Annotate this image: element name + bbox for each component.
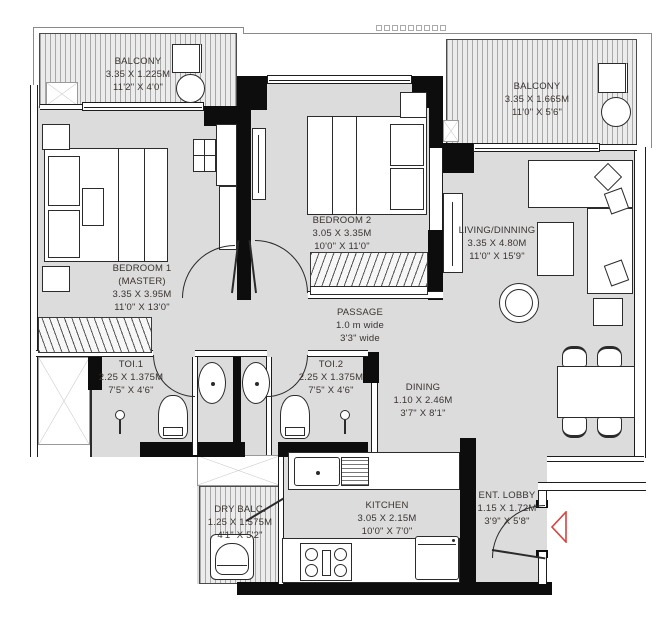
wall-thin (195, 350, 237, 357)
side-table (193, 139, 216, 172)
room-dim-m: 1.15 X 1.72M (452, 502, 562, 515)
bed-fold-line (332, 117, 333, 214)
room-subname: (MASTER) (77, 275, 207, 288)
drum-line (217, 565, 247, 566)
room-name: BEDROOM 2 (277, 214, 407, 227)
wc-toilet2 (280, 395, 310, 439)
duct-ledge (443, 120, 459, 142)
room-dim-ft: 10'0" X 11'0" (277, 240, 407, 253)
fridge-knob (452, 539, 455, 542)
side-table (593, 298, 623, 326)
wardrobe-bedroom2 (310, 252, 428, 288)
parapet-rail (40, 104, 84, 110)
exterior-wall (634, 147, 646, 458)
bed-fold-line (144, 149, 145, 261)
window (473, 143, 600, 152)
room-label-passage: PASSAGE 1.0 m wide 3'3" wide (295, 306, 425, 345)
fridge (415, 536, 459, 580)
parapet-square (408, 25, 414, 31)
pillow (48, 156, 80, 206)
burner (305, 564, 318, 577)
wall-segment (237, 76, 267, 110)
parapet-detail (376, 25, 446, 31)
pillow (390, 124, 424, 166)
room-dim-ft: 11'0" X 15'9" (432, 250, 562, 263)
nightstand (42, 266, 70, 292)
washbasin-toilet1 (198, 362, 226, 404)
room-dim-ft: 3'7" X 8'1" (368, 407, 478, 420)
wc-base (163, 427, 183, 436)
room-dim-m: 3.05 X 3.35M (277, 227, 407, 240)
window (82, 102, 204, 111)
dresser (216, 124, 237, 186)
washing-drum (215, 543, 249, 575)
shower-toilet2 (340, 410, 350, 420)
burner (305, 548, 318, 561)
room-label-dry-balcony: DRY BALC. 1.25 X 1.575M 4'1" X 5'2" (185, 503, 295, 542)
room-label-kitchen: KITCHEN 3.05 X 2.15M 10'0" X 7'0" (332, 499, 442, 538)
shower-toilet1 (115, 410, 125, 420)
wall-thin (429, 148, 443, 230)
shower-stem (344, 420, 346, 434)
sink-drain (316, 471, 320, 475)
study-desk (219, 186, 237, 250)
sink-drainboard (341, 457, 369, 486)
kitchen-sink (294, 457, 340, 486)
room-label-balcony-right: BALCONY 3.35 X 1.665M 11'0" X 5'6" (472, 80, 602, 119)
parapet-square (440, 25, 446, 31)
dining-chair (597, 417, 622, 438)
room-name: DINING (368, 381, 478, 394)
room-name: PASSAGE (295, 306, 425, 319)
washbasin-toilet2 (242, 362, 270, 404)
wall-segment (237, 582, 552, 595)
room-label-bedroom2: BEDROOM 2 3.05 X 3.35M 10'0" X 11'0" (277, 214, 407, 253)
parapet-square (424, 25, 430, 31)
mirror-unit (252, 128, 266, 200)
room-dim-m: 3.05 X 2.15M (332, 512, 442, 525)
room-label-entrance-lobby: ENT. LOBBY 1.15 X 1.72M 3'9" X 5'8" (452, 489, 562, 528)
room-name: LIVING/DINNING (432, 224, 562, 237)
swivel-chair-inner (505, 289, 533, 317)
room-dim-ft: 4'1" X 5'2" (185, 529, 295, 542)
exterior-wall (30, 85, 38, 457)
room-dim-m: 1.25 X 1.575M (185, 516, 295, 529)
planter-pot (601, 97, 631, 127)
wall-line (90, 390, 92, 457)
room-dim-ft: 3'3" wide (295, 332, 425, 345)
burner (334, 564, 347, 577)
room-dim-ft: 11'0" X 5'6" (472, 106, 602, 119)
room-dim-ft: 3'9" X 5'8" (452, 515, 562, 528)
gas-stove (300, 543, 352, 581)
wall-segment (204, 106, 237, 126)
pillow (390, 168, 424, 210)
room-dim-m: 2.25 X 1.375M (76, 371, 186, 384)
room-dim-m: 3.35 X 4.80M (432, 237, 562, 250)
parapet-square (392, 25, 398, 31)
window (267, 75, 412, 84)
mirror-line (258, 135, 259, 193)
wc-toilet1 (158, 395, 188, 439)
burner (334, 548, 347, 561)
room-name: BALCONY (472, 80, 602, 93)
dining-table (557, 366, 635, 418)
parapet-square (376, 25, 382, 31)
bed-fold-line (356, 117, 357, 214)
parapet-square (384, 25, 390, 31)
shower-stem (119, 420, 121, 434)
nightstand (42, 124, 70, 150)
plot-outline (33, 27, 34, 88)
pillow (48, 210, 80, 258)
wall-thin (237, 350, 267, 357)
bed-fold-line (118, 149, 119, 261)
room-name: BEDROOM 1 (77, 262, 207, 275)
room-dim-ft: 11'2" X 4'0" (73, 81, 203, 94)
room-name: TOI.1 (76, 358, 186, 371)
wc-base (285, 427, 305, 436)
room-dim-m: 3.35 X 3.95M (77, 288, 207, 301)
room-label-living-dining: LIVING/DINNING 3.35 X 4.80M 11'0" X 15'9… (432, 224, 562, 263)
room-label-dining: DINING 1.10 X 2.46M 3'7" X 8'1" (368, 381, 478, 420)
stove-center (322, 550, 331, 576)
service-ledge (197, 455, 280, 486)
plot-outline (651, 33, 652, 148)
wall-segment (429, 76, 443, 148)
pillow (82, 188, 104, 226)
room-name: DRY BALC. (185, 503, 295, 516)
room-dim-ft: 7'5" X 4'6" (76, 384, 186, 397)
planter-box (598, 63, 628, 93)
room-dim-ft: 10'0" X 7'0" (332, 525, 442, 538)
room-dim-m: 3.35 X 1.225M (73, 68, 203, 81)
floor-plan: BALCONY 3.35 X 1.225M 11'2" X 4'0" BEDRO… (0, 0, 667, 626)
basin-drain (255, 382, 259, 386)
room-name: KITCHEN (332, 499, 442, 512)
plot-outline (243, 33, 652, 34)
room-name: TOI.2 (276, 358, 386, 371)
wall-segment (233, 352, 241, 457)
fridge-line (418, 544, 456, 545)
room-name: BALCONY (73, 55, 203, 68)
basin-drain (211, 382, 215, 386)
dining-chair (562, 417, 587, 438)
parapet-square (400, 25, 406, 31)
plot-outline (33, 27, 243, 28)
nightstand (400, 92, 427, 118)
room-dim-m: 3.35 X 1.665M (472, 93, 602, 106)
dining-chair (597, 346, 622, 367)
room-dim-m: 1.10 X 2.46M (368, 394, 478, 407)
wall-segment (237, 108, 251, 300)
wall-thin (547, 456, 644, 462)
wall-thin (308, 350, 368, 357)
room-label-balcony-left: BALCONY 3.35 X 1.225M 11'2" X 4'0" (73, 55, 203, 94)
parapet-square (416, 25, 422, 31)
room-label-bedroom1: BEDROOM 1 (MASTER) 3.35 X 3.95M 11'0" X … (77, 262, 207, 314)
room-label-toilet1: TOI.1 2.25 X 1.375M 7'5" X 4'6" (76, 358, 186, 397)
parapet-rail (598, 144, 637, 151)
dining-chair (562, 346, 587, 367)
room-dim-m: 1.0 m wide (295, 319, 425, 332)
wardrobe-track (310, 286, 428, 295)
room-name: ENT. LOBBY (452, 489, 562, 502)
wardrobe-master (38, 317, 152, 353)
parapet-square (432, 25, 438, 31)
room-dim-ft: 11'0" X 13'0" (77, 301, 207, 314)
